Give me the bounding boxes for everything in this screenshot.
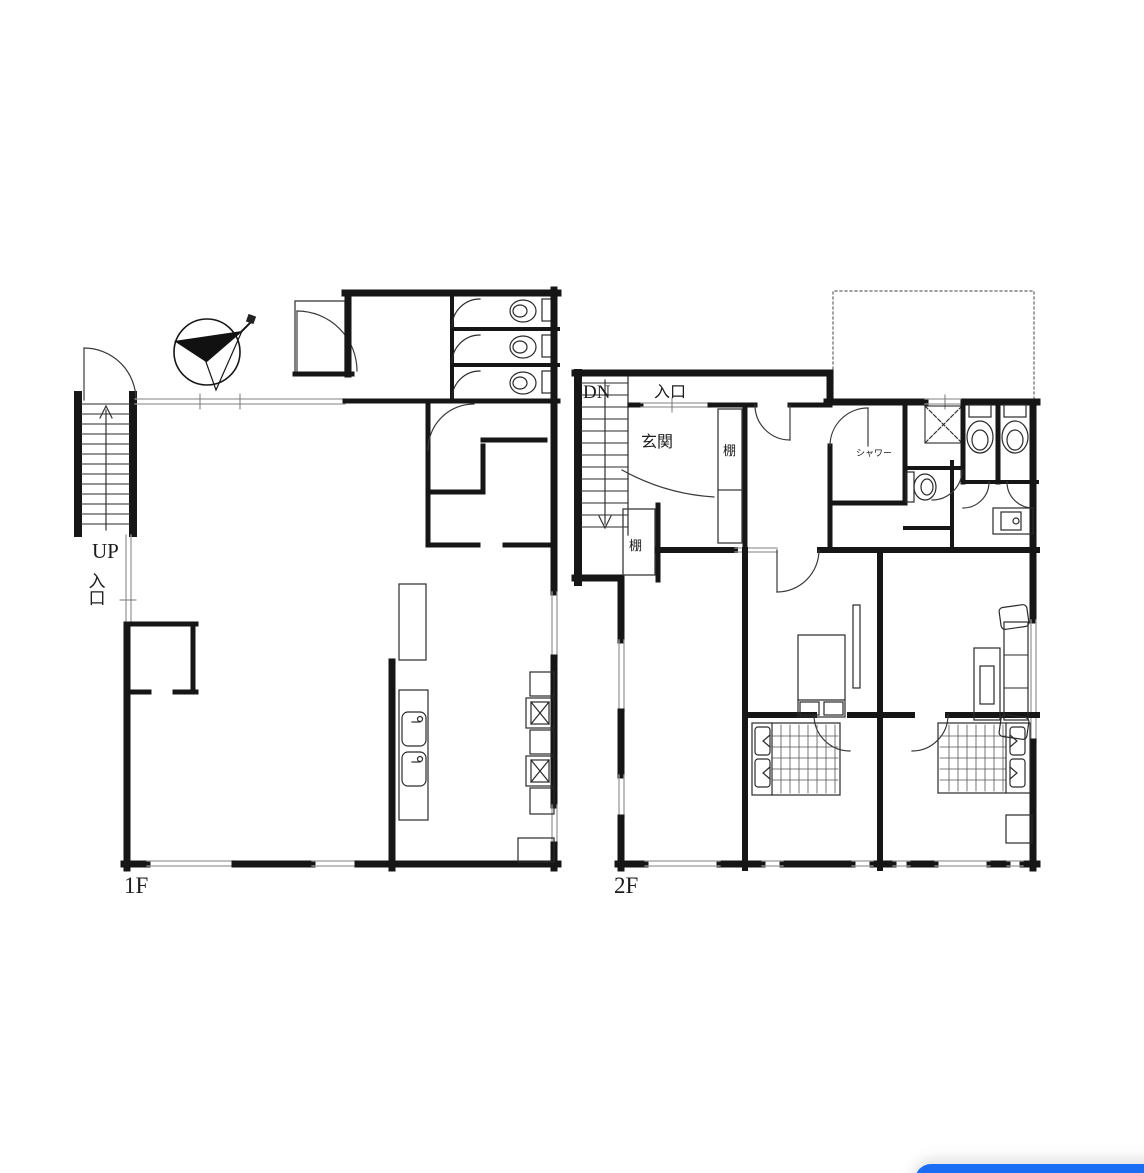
stove-icon	[526, 698, 554, 728]
action-button[interactable]	[915, 1164, 1144, 1173]
stairs-up-icon	[78, 348, 136, 533]
bed-icon	[752, 723, 840, 795]
mirror-board	[853, 605, 860, 688]
bed-icon	[938, 723, 1030, 793]
sofa-icon	[999, 604, 1030, 740]
roof-outline-dotted	[833, 291, 1034, 399]
interior-walls-2f	[658, 548, 1037, 868]
floor-label-1f: 1F	[124, 873, 148, 898]
table-icon	[974, 648, 1000, 720]
sink-icon	[402, 712, 426, 786]
shelf-label-b: 棚	[629, 539, 642, 554]
shelf-label-a: 棚	[723, 444, 736, 459]
bed-icon	[798, 635, 845, 717]
floor-plan-2f: DN 入口 玄関 棚 棚 シャワー 2F	[575, 291, 1037, 898]
toilet-icon	[452, 299, 552, 399]
stair-down-label: DN	[583, 382, 611, 403]
floor-plan-1f: UP 入口 1F	[78, 290, 558, 898]
shower-pan-icon	[925, 406, 962, 443]
screenshot-canvas: UP 入口 1F	[0, 0, 1144, 1173]
floor-plan-drawing: UP 入口 1F	[0, 0, 1144, 1173]
shower-label: シャワー	[856, 449, 892, 459]
genkan-label: 玄関	[641, 432, 673, 451]
cabinet	[1006, 815, 1032, 843]
stair-up-label: UP	[92, 539, 119, 563]
floor-label-2f: 2F	[614, 873, 638, 898]
service-zone-2f	[830, 402, 1037, 550]
interior-walls-1f	[127, 401, 554, 868]
north-arrow-compass-icon	[174, 314, 256, 390]
stove-icon	[526, 756, 554, 786]
toilet-icon	[906, 472, 936, 502]
entrance-label-1f: 入口	[86, 572, 106, 606]
entrance-label-2f: 入口	[654, 382, 686, 401]
washbasin-icon	[993, 508, 1033, 534]
kitchen-counters-1f	[399, 584, 554, 862]
